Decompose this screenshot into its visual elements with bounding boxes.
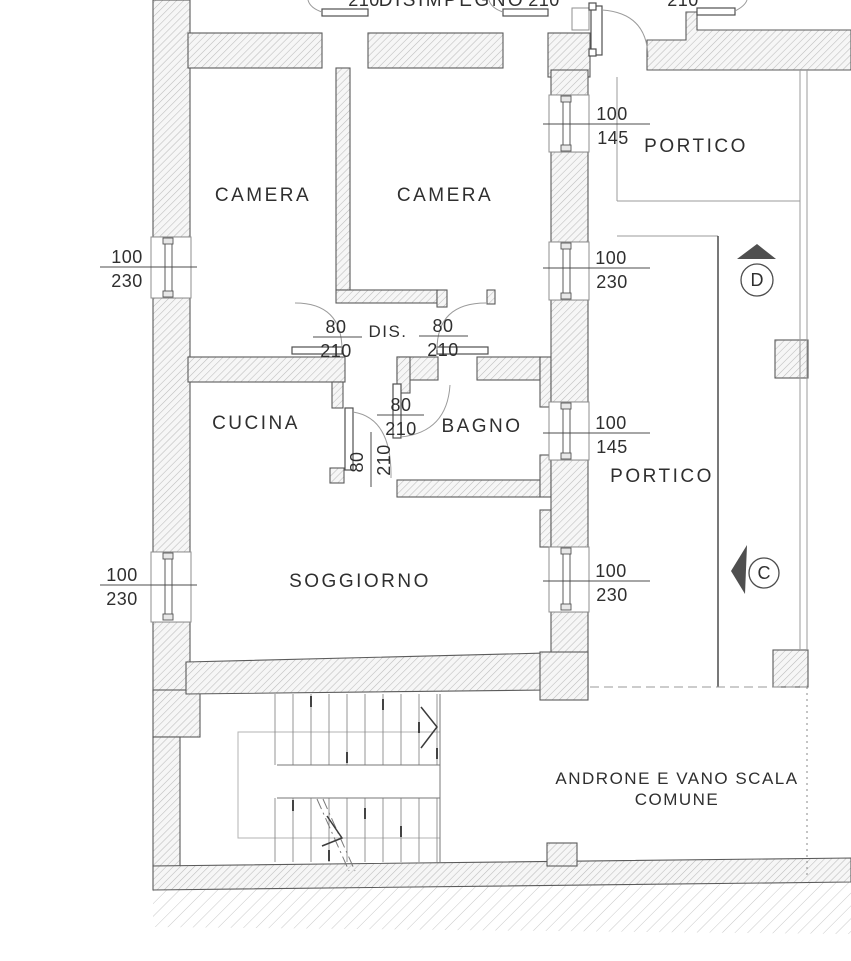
dim-dis-right-den: 210 [427,340,459,360]
wall-right-3 [551,300,588,402]
wall-top-right-band [647,12,851,70]
dim-cucina-num: 80 [347,451,367,472]
wall-bagno-right-lip-bottom [540,455,551,497]
top-dimensions: 210 DISIMPEGNO 210 210 [348,0,699,11]
section-marker-d: D [737,244,776,296]
room-label-disimpegno: DISIMPEGNO [379,0,525,11]
room-label-bagno: BAGNO [441,416,522,437]
stair-landing-lines [277,765,440,798]
floor-plan-canvas: 100 230 100 230 100 145 100 230 [0,0,851,961]
staircase [238,694,440,871]
wall-soggiorno-bottom [186,653,548,694]
dim-dis-left-num: 80 [325,317,346,337]
stair-treads-lower [275,798,437,862]
wall-dis-top [336,290,437,303]
room-label-camera-left: CAMERA [215,185,311,206]
wall-stair-left-lower [153,737,180,866]
window-right-top: 100 145 [543,95,650,152]
window-dim-den: 230 [596,585,628,605]
pilaster-right-edge [775,340,808,378]
window-dim-den: 145 [597,128,629,148]
window-dim-num: 100 [596,104,628,124]
column-portico [773,650,808,687]
wall-cucina-lobby [332,382,343,408]
window-dim-num: 100 [595,413,627,433]
room-label-soggiorno: SOGGIORNO [289,571,431,592]
wall-bagno-right-lip-top [540,357,551,407]
dim-dis-left-den: 210 [320,341,352,361]
dim-top-mid: 210 [528,0,560,10]
room-label-portico-lower: PORTICO [610,466,714,487]
dim-top-left: 210 [348,0,380,10]
wall-dis-pier-right [487,290,495,304]
dim-cucina-den: 210 [374,444,394,476]
column-androne [547,843,577,866]
window-dim-num: 100 [595,248,627,268]
room-label-androne-line2: COMUNE [635,790,720,809]
wall-stair-left-upper [153,690,200,737]
stairwell-outline [238,732,440,838]
wall-right-lip-soggiorno [540,510,551,547]
dim-bagno-den: 210 [385,419,417,439]
room-label-camera-right: CAMERA [397,185,493,206]
window-left-upper: 100 230 [100,237,197,298]
doors [292,0,747,478]
wall-top-1 [188,33,322,68]
window-dim-den: 230 [111,271,143,291]
wall-between-bedrooms [336,68,350,290]
floor-plan-page: 100 230 100 230 100 145 100 230 [0,0,851,961]
room-label-portico-upper: PORTICO [644,136,748,157]
window-dim-den: 230 [106,589,138,609]
walls [153,0,851,890]
wall-left-mid [153,298,190,552]
wall-right-4 [551,460,588,547]
room-label-dis: DIS. [368,322,407,341]
dim-top-right: 210 [667,0,699,10]
dim-dis-right-num: 80 [432,316,453,336]
wall-dis-pier-left [437,290,447,307]
room-labels: CAMERA CAMERA DIS. CUCINA BAGNO SOGGIORN… [212,136,799,809]
wall-left-low [153,622,190,692]
window-dim-num: 100 [106,565,138,585]
marker-d-triangle-icon [737,244,776,259]
window-dim-den: 145 [596,437,628,457]
window-right-lower-mid: 100 145 [543,402,650,460]
room-label-androne-line1: ANDRONE E VANO SCALA [555,769,798,788]
stair-direction-arrow-icon [421,707,437,748]
wall-bagno-top-right [477,357,540,380]
wall-right-1 [551,70,588,95]
window-right-upper-mid: 100 230 [543,242,650,300]
window-left-lower: 100 230 [100,552,197,622]
wall-cucina-foot [330,468,344,483]
section-marker-c: C [731,545,779,594]
wall-right-2 [551,152,588,242]
wall-stair-right [540,652,588,700]
stair-treads-upper [275,694,437,765]
wall-bagno-bottom [397,480,540,497]
stair-break-arrow-icon [322,816,342,846]
marker-c-letter: C [758,563,771,583]
door-top-right [697,0,747,15]
wall-top-2 [368,33,503,68]
window-dim-num: 100 [595,561,627,581]
room-label-cucina: CUCINA [212,413,300,434]
marker-d-letter: D [751,270,764,290]
dim-bagno-num: 80 [390,395,411,415]
marker-c-triangle-icon [731,545,747,594]
stair-break-line [317,799,355,871]
wall-left-top [153,0,190,237]
window-right-bottom: 100 230 [543,547,650,612]
window-dim-den: 230 [596,272,628,292]
window-dim-num: 100 [111,247,143,267]
